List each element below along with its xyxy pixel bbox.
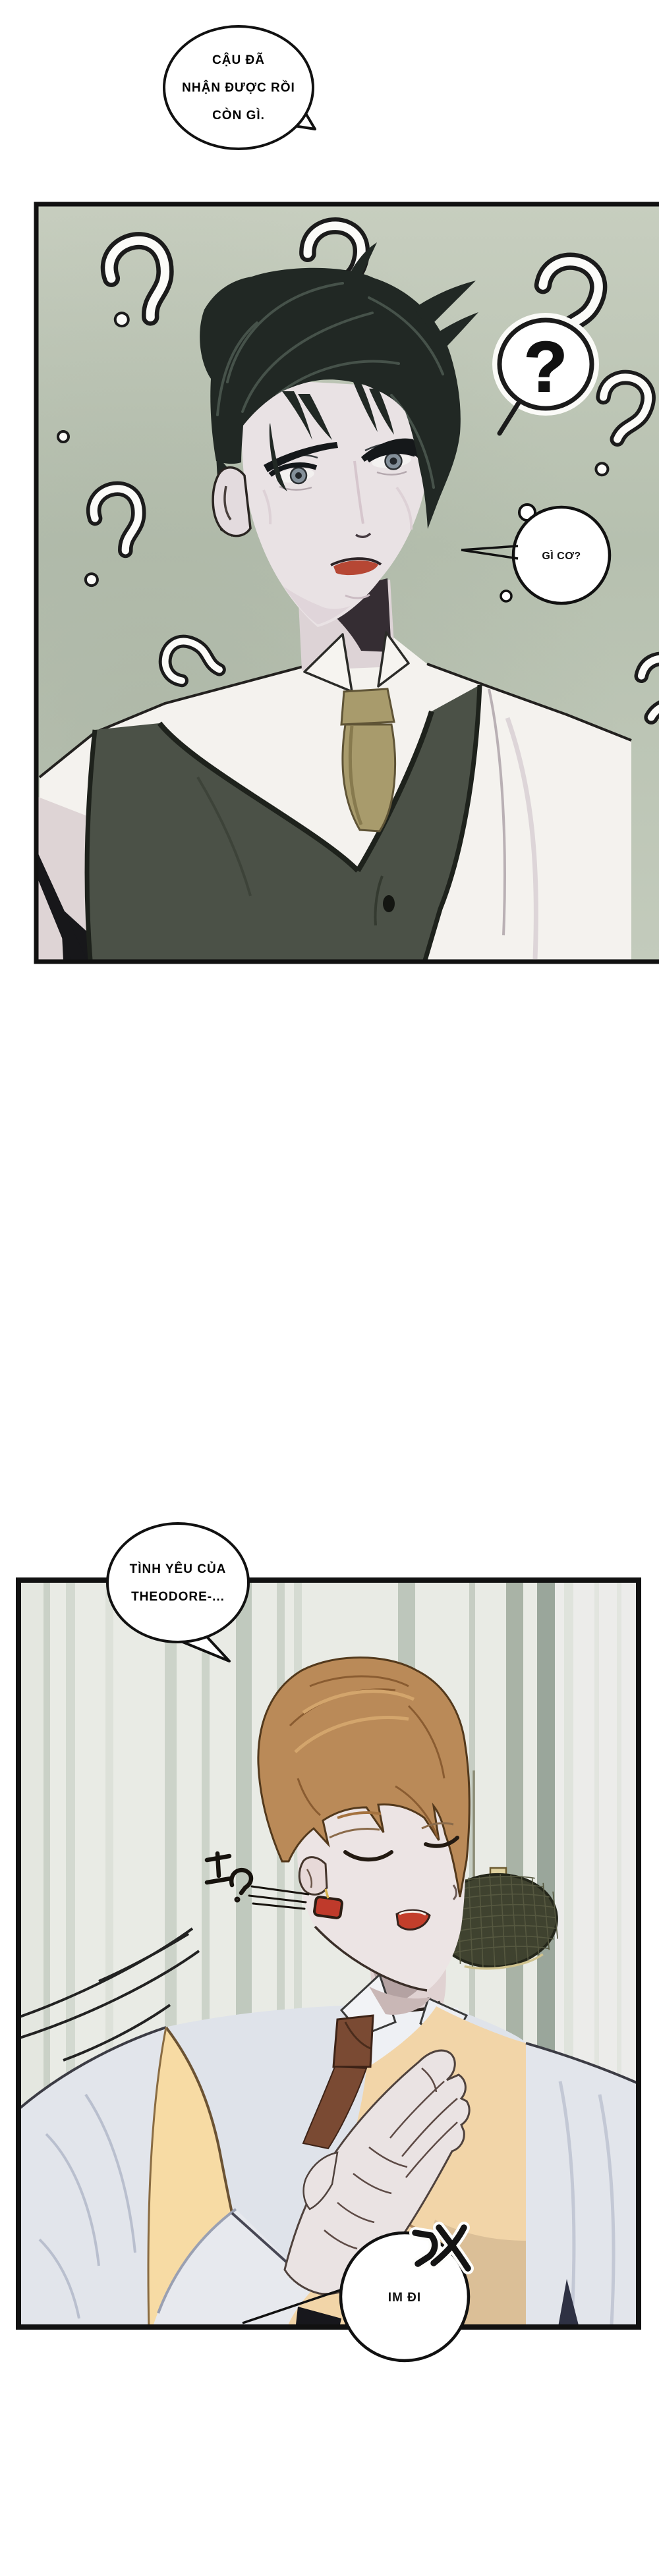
svg-text:CÒN GÌ.: CÒN GÌ. — [212, 108, 265, 123]
svg-text:THEODORE-...: THEODORE-... — [131, 1590, 225, 1604]
svg-text:CẬU ĐÃ: CẬU ĐÃ — [212, 53, 265, 67]
svg-text:IM ĐI: IM ĐI — [388, 2291, 421, 2305]
svg-text:GÌ CƠ?: GÌ CƠ? — [542, 549, 581, 562]
svg-text:TÌNH YÊU CỦA: TÌNH YÊU CỦA — [130, 1562, 227, 1576]
svg-text:?: ? — [524, 327, 567, 406]
svg-text:NHẬN ĐƯỢC RỒI: NHẬN ĐƯỢC RỒI — [182, 80, 295, 95]
